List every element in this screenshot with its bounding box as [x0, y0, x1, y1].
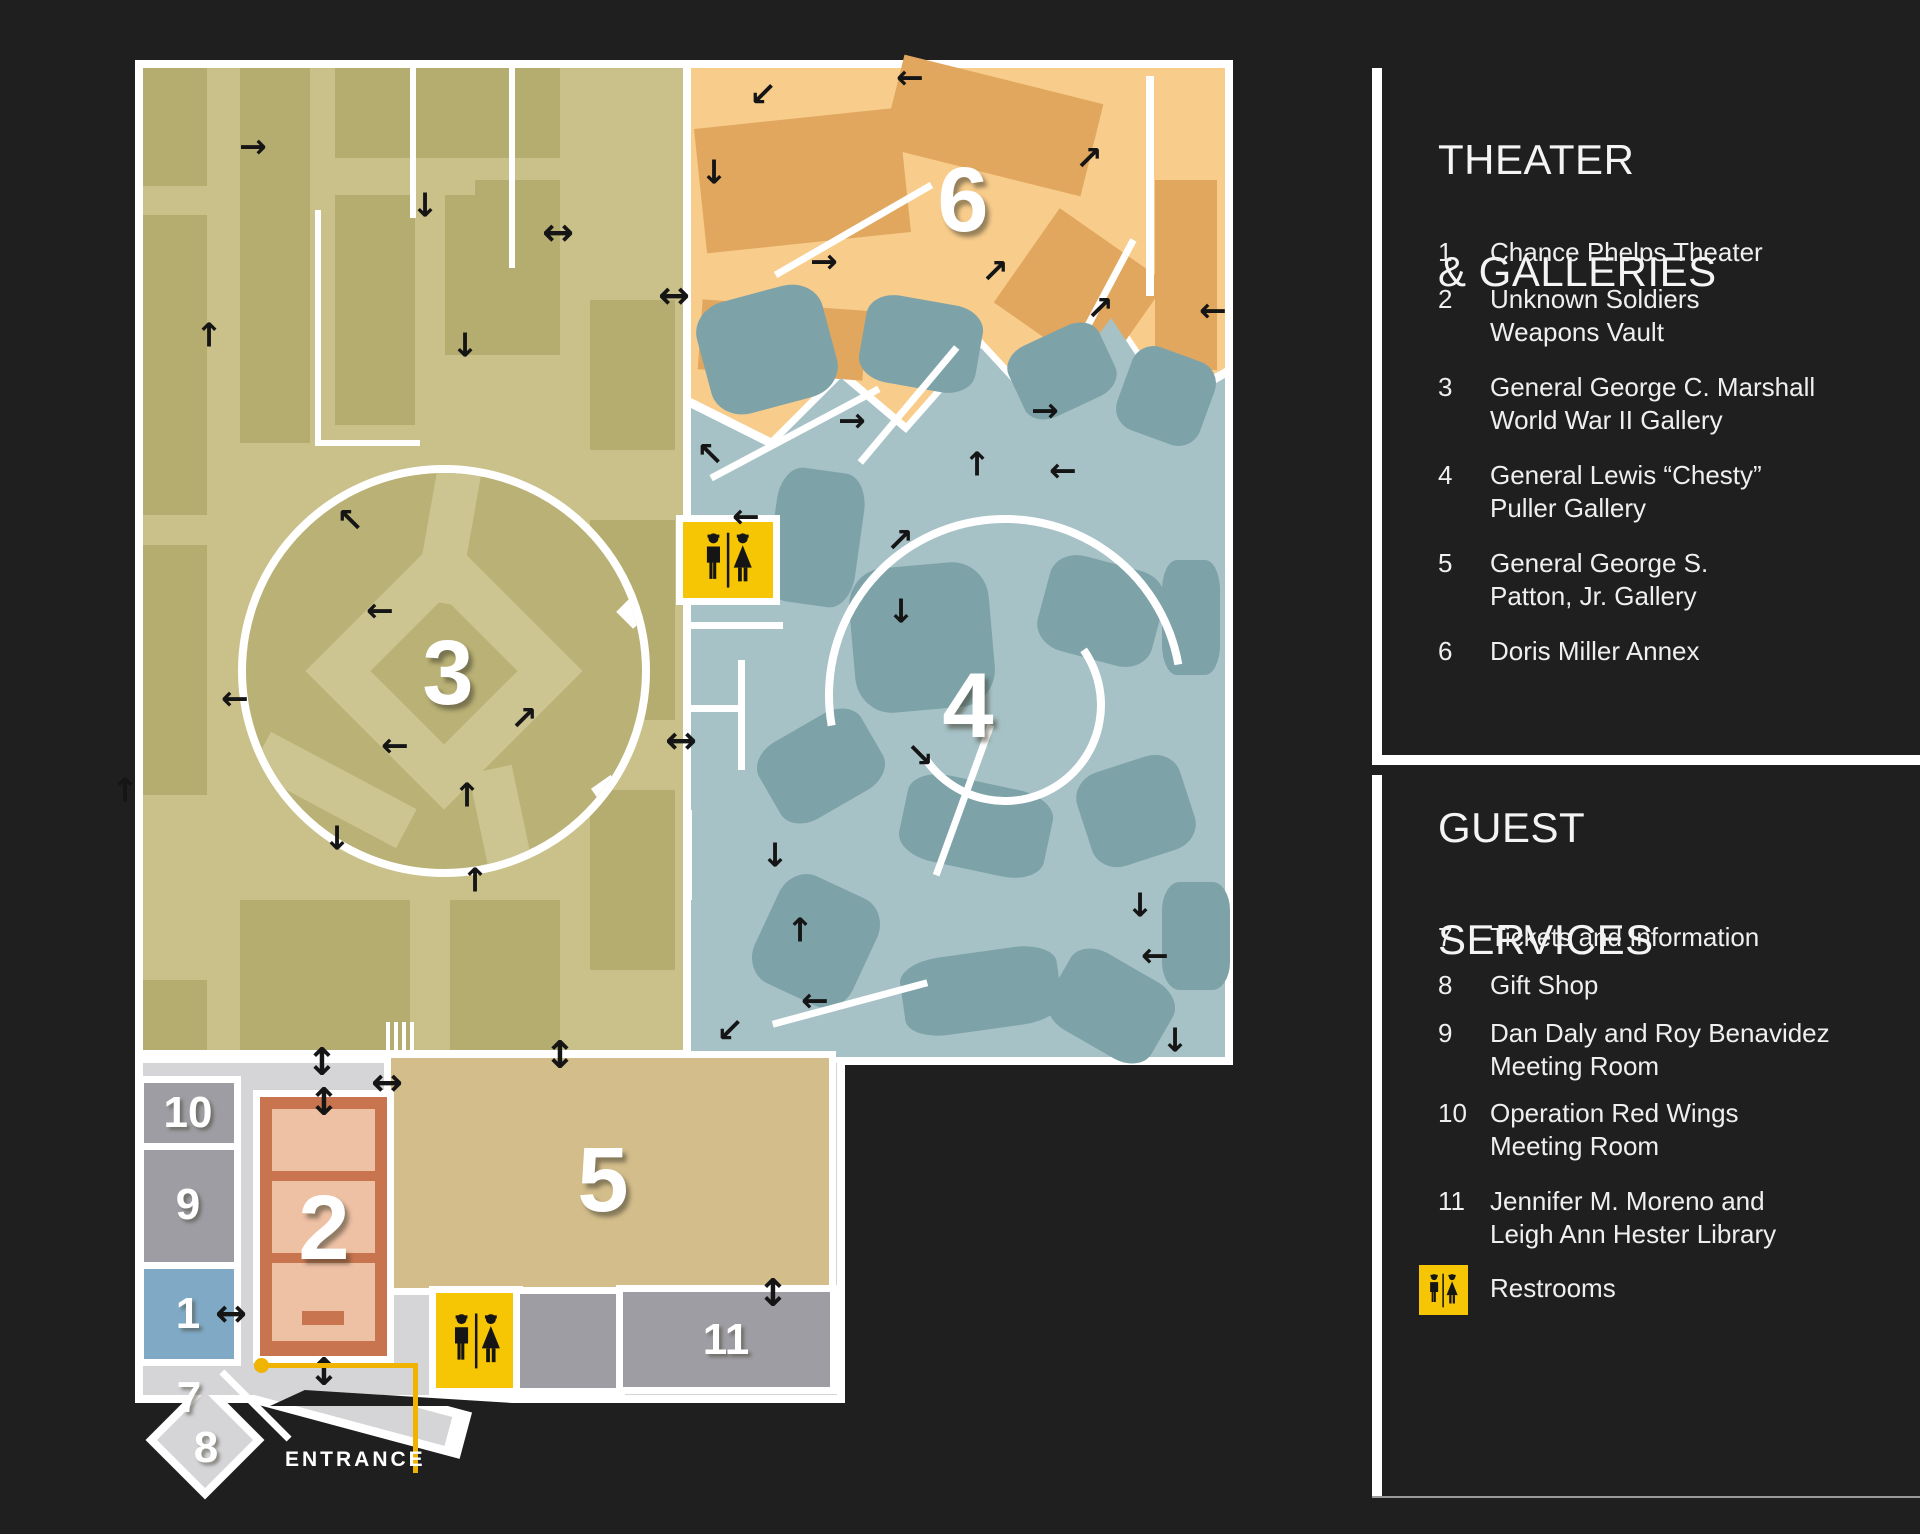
item-number: 11	[1438, 1185, 1490, 1251]
item-number: 1	[1438, 236, 1490, 269]
library-room-11-a	[520, 1294, 618, 1388]
map-wall	[685, 810, 692, 900]
legend-item-2: 2 Unknown Soldiers Weapons Vault	[1438, 283, 1700, 349]
direction-arrow-icon	[757, 1274, 789, 1312]
direction-arrow-icon	[1161, 1024, 1189, 1057]
map-wall	[738, 660, 745, 770]
map-wall	[509, 68, 515, 268]
map-detail-block	[240, 68, 310, 443]
item-name: General George S. Patton, Jr. Gallery	[1490, 547, 1708, 613]
item-number: 7	[1438, 921, 1490, 954]
panel-border	[1372, 775, 1382, 1497]
map-detail-block	[143, 68, 207, 186]
map-marker-10: 10	[164, 1091, 213, 1135]
item-name: General George C. Marshall World War II …	[1490, 371, 1815, 437]
direction-arrow-icon	[195, 319, 223, 352]
map-wall	[685, 705, 745, 712]
panel-border	[1372, 68, 1382, 755]
direction-arrow-icon	[761, 839, 789, 872]
map-marker-11: 11	[703, 1318, 750, 1362]
item-name: Doris Miller Annex	[1490, 635, 1700, 668]
map-marker-9: 9	[176, 1183, 200, 1227]
legend-item-5: 5 General George S. Patton, Jr. Gallery	[1438, 547, 1708, 613]
direction-arrow-icon	[308, 1353, 340, 1391]
legend-item-10: 10 Operation Red Wings Meeting Room	[1438, 1097, 1739, 1163]
stair-mark	[402, 1022, 406, 1054]
map-detail-block	[590, 300, 675, 450]
title-line: THEATER	[1438, 136, 1634, 183]
legend-item-8: 8 Gift Shop	[1438, 969, 1598, 1002]
stair-mark	[394, 1022, 398, 1054]
item-name: Gift Shop	[1490, 969, 1598, 1002]
direction-arrow-icon	[1031, 394, 1059, 427]
item-number: 2	[1438, 283, 1490, 349]
map-wall	[683, 622, 783, 629]
direction-arrow-icon	[1049, 454, 1077, 487]
direction-arrow-icon	[838, 404, 866, 437]
item-number: 10	[1438, 1097, 1490, 1163]
panel-border	[1372, 755, 1920, 765]
item-name: Restrooms	[1490, 1272, 1616, 1305]
item-name: Operation Red Wings Meeting Room	[1490, 1097, 1739, 1163]
item-number: 5	[1438, 547, 1490, 613]
direction-arrow-icon	[411, 189, 439, 222]
restrooms-icon	[1419, 1265, 1468, 1315]
direction-arrow-icon	[887, 595, 915, 628]
item-number: 8	[1438, 969, 1490, 1002]
direction-arrow-icon	[1086, 292, 1114, 325]
direction-arrow-icon	[451, 329, 479, 362]
direction-arrow-icon	[323, 822, 351, 855]
direction-arrow-icon	[786, 914, 814, 947]
direction-arrow-icon	[461, 864, 489, 897]
map-detail-block	[450, 900, 560, 1050]
direction-arrow-icon	[665, 721, 697, 759]
direction-arrow-icon	[239, 130, 267, 163]
map-detail-block	[335, 195, 415, 425]
entrance-label: ENTRANCE	[285, 1448, 426, 1472]
title-line: GUEST	[1438, 804, 1585, 851]
map-detail-block	[1155, 180, 1217, 370]
direction-arrow-icon	[306, 1043, 338, 1081]
item-name: Chance Phelps Theater	[1490, 236, 1763, 269]
map-detail-block	[335, 68, 560, 158]
map-wall	[315, 210, 321, 445]
panel-border	[1372, 1496, 1920, 1498]
legend-item-3: 3 General George C. Marshall World War I…	[1438, 371, 1815, 437]
item-name: General Lewis “Chesty” Puller Gallery	[1490, 459, 1762, 525]
legend-item-6: 6 Doris Miller Annex	[1438, 635, 1700, 668]
item-name: Dan Daly and Roy Benavidez Meeting Room	[1490, 1017, 1830, 1083]
direction-arrow-icon	[371, 1063, 403, 1101]
item-number: 6	[1438, 635, 1490, 668]
map-detail-block	[590, 790, 675, 970]
vault-detail	[302, 1311, 344, 1325]
direction-arrow-icon	[111, 774, 139, 807]
map-detail-block	[1162, 882, 1230, 990]
map-detail-block	[475, 180, 560, 350]
direction-arrow-icon	[981, 255, 1009, 288]
museum-floor-map-page: 3 6 4 5 2 10 9 1 7 8 11	[0, 0, 1920, 1534]
legend-item-7: 7 Tickets and Information	[1438, 921, 1759, 954]
map-marker-7: 7	[177, 1376, 201, 1420]
direction-arrow-icon	[542, 213, 574, 251]
map-marker-2: 2	[298, 1182, 349, 1274]
map-detail-block	[143, 215, 207, 515]
direction-arrow-icon	[1126, 889, 1154, 922]
map-detail-block	[240, 900, 410, 1050]
map-wall	[315, 440, 420, 446]
entrance-leader-line	[261, 1363, 417, 1368]
direction-arrow-icon	[810, 245, 838, 278]
direction-arrow-icon	[716, 1014, 744, 1047]
direction-arrow-icon	[696, 438, 724, 471]
map-marker-6: 6	[937, 154, 988, 246]
map-detail-block	[143, 545, 207, 795]
direction-arrow-icon	[801, 984, 829, 1017]
direction-arrow-icon	[886, 524, 914, 557]
direction-arrow-icon	[896, 61, 924, 94]
direction-arrow-icon	[963, 448, 991, 481]
direction-arrow-icon	[453, 779, 481, 812]
restrooms-icon	[436, 1293, 516, 1388]
map-marker-3: 3	[422, 627, 473, 719]
direction-arrow-icon	[544, 1036, 576, 1074]
legend-item-11: 11 Jennifer M. Moreno and Leigh Ann Hest…	[1438, 1185, 1776, 1251]
legend-item-restrooms: Restrooms	[1490, 1272, 1616, 1305]
map-marker-5: 5	[577, 1134, 628, 1226]
direction-arrow-icon	[700, 156, 728, 189]
item-name: Jennifer M. Moreno and Leigh Ann Hester …	[1490, 1185, 1776, 1251]
direction-arrow-icon	[732, 500, 760, 533]
stair-mark	[410, 1022, 414, 1054]
direction-arrow-icon	[215, 1294, 247, 1332]
legend-item-4: 4 General Lewis “Chesty” Puller Gallery	[1438, 459, 1762, 525]
map-wall	[1146, 76, 1154, 296]
item-number: 9	[1438, 1017, 1490, 1083]
direction-arrow-icon	[749, 78, 777, 111]
direction-arrow-icon	[221, 682, 249, 715]
direction-arrow-icon	[1141, 939, 1169, 972]
direction-arrow-icon	[510, 702, 538, 735]
direction-arrow-icon	[336, 504, 364, 537]
direction-arrow-icon	[658, 276, 690, 314]
legend-item-1: 1 Chance Phelps Theater	[1438, 236, 1763, 269]
map-marker-4: 4	[942, 660, 993, 752]
item-number: 3	[1438, 371, 1490, 437]
direction-arrow-icon	[366, 594, 394, 627]
item-name: Unknown Soldiers Weapons Vault	[1490, 283, 1700, 349]
stair-mark	[386, 1022, 390, 1054]
direction-arrow-icon	[906, 739, 934, 772]
item-name: Tickets and Information	[1490, 921, 1759, 954]
map-marker-8: 8	[194, 1426, 218, 1470]
legend-item-9: 9 Dan Daly and Roy Benavidez Meeting Roo…	[1438, 1017, 1830, 1083]
direction-arrow-icon	[308, 1083, 340, 1121]
direction-arrow-icon	[381, 729, 409, 762]
direction-arrow-icon	[1199, 294, 1227, 327]
theater-galleries-title: THEATER & GALLERIES	[1438, 132, 1717, 300]
direction-arrow-icon	[1075, 142, 1103, 175]
map-detail-block	[143, 980, 207, 1050]
item-number: 4	[1438, 459, 1490, 525]
map-marker-1: 1	[176, 1292, 200, 1336]
